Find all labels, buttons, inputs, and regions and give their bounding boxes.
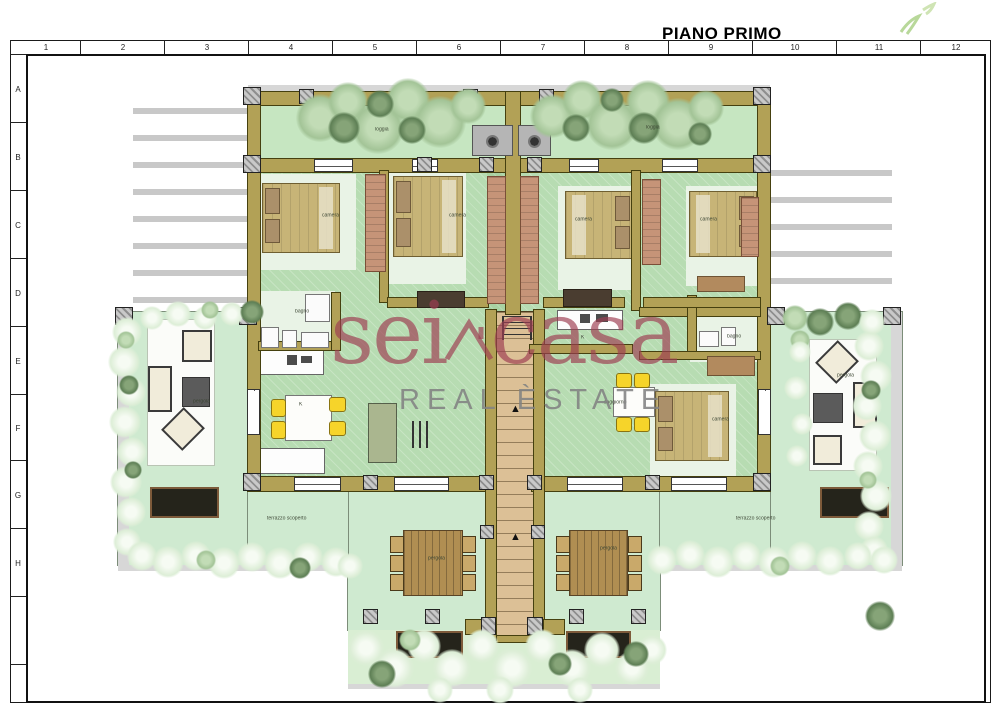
ruler-row-A: A [10,54,26,123]
brand-right: casa [491,300,678,369]
roof-slat [768,278,892,284]
pier [480,476,493,489]
pier [646,476,659,489]
window [672,478,726,490]
tree [861,380,881,400]
pier [418,158,431,171]
chair [617,418,631,431]
ruler-row-E: E [10,326,26,395]
wood-chair [463,537,475,552]
bush [337,553,363,579]
window [315,160,352,171]
bush [859,309,885,335]
ruler-column-1: 1 [10,40,81,54]
bath-fixture [283,331,296,347]
tree [600,88,624,112]
ruler-column-5: 5 [332,40,417,54]
bed-pillow [616,197,629,220]
roof-slat [133,270,247,276]
bed-sheet [696,195,710,253]
ruler-column-7: 7 [500,40,585,54]
tree [398,116,426,144]
wood-chair [463,556,475,571]
tree [240,300,264,324]
bush [109,406,141,438]
bed-pillow [266,220,279,242]
bush [140,306,164,330]
ruler-column-9: 9 [668,40,753,54]
tree [688,90,724,126]
tree [623,641,649,667]
tree [196,550,216,570]
bush [152,546,184,578]
ruler-column-10: 10 [752,40,837,54]
tree [865,601,895,631]
roof-slat [768,197,892,203]
bush [116,497,146,527]
bush [165,301,191,327]
ruler-row-G: G [10,460,26,529]
tree [368,660,396,688]
wood-chair [629,556,641,571]
roof-slat [768,170,892,176]
bath-fixture [302,333,328,347]
pier [244,88,260,104]
pier [481,526,493,538]
tree [548,652,572,676]
sink [301,356,312,363]
roof-slat [133,108,247,114]
wood-chair [391,556,403,571]
bed-pillow [659,428,672,450]
tree [834,302,862,330]
bed-sheet [708,395,722,457]
bush [786,445,808,467]
pier [364,476,377,489]
pier [244,156,260,172]
wood-chair [463,575,475,590]
tree [450,88,486,124]
dining-table [286,396,331,440]
bed-sheet [572,195,586,255]
pier [528,158,541,171]
pier [532,526,544,538]
tree [399,629,421,651]
bed-pillow [397,219,410,247]
bath-fixture [262,328,278,347]
outdoor-armchair [150,368,170,410]
radiator [412,421,429,448]
bed-pillow [266,189,279,213]
wood-chair [629,537,641,552]
ruler-row-C: C [10,190,26,259]
roof-slat [133,135,247,141]
wardrobe [742,198,758,256]
bush [870,546,898,574]
wood-chair [391,537,403,552]
tree [201,301,219,319]
chair [272,422,285,438]
roof-slat [133,189,247,195]
window [248,390,259,434]
chair [330,422,345,435]
window [663,160,697,171]
wood-chair [629,575,641,590]
brand-left: sei [330,300,447,369]
ruler-row-H: H [10,528,26,597]
ac-fan-icon [530,137,539,146]
tree [119,375,139,395]
watermark-subtitle: REAL ÈSTATE [399,384,667,417]
ruler-column-11: 11 [836,40,921,54]
sideboard [261,449,324,473]
path-strip [891,312,902,565]
tree [366,90,394,118]
pier [364,610,377,623]
outdoor-table [814,394,842,422]
pier [754,156,770,172]
wood-chair [557,575,569,590]
window [295,478,340,490]
tree [328,112,360,144]
tree [770,556,790,576]
roof-slat [768,251,892,257]
ruler-column-12: 12 [920,40,991,54]
pier [632,610,645,623]
pier [480,158,493,171]
window [570,160,598,171]
pier [754,88,770,104]
house-roof-icon [443,309,495,363]
tree [688,122,712,146]
tree [806,308,834,336]
tree [124,461,142,479]
outdoor-armchair [815,437,840,463]
bush [237,542,267,572]
bush [844,542,872,570]
bush [787,541,817,571]
tree [859,471,877,489]
wood-chair [557,537,569,552]
roof-slat [768,224,892,230]
bush [854,331,884,361]
outdoor-armchair [184,332,210,360]
pier [528,476,541,489]
bed-pillow [397,182,410,212]
bush [427,677,453,703]
bush [567,677,593,703]
wardrobe [366,175,385,271]
roof-slat [133,162,247,168]
tree [782,305,808,331]
chair [635,418,649,431]
dresser [708,357,754,375]
bush [647,545,677,575]
ruler-column-8: 8 [584,40,669,54]
floorplan-sheet: PIANO PRIMO 123456789101112 ABCDEFGH ▲▲l… [0,0,1000,707]
ruler-row-F: F [10,394,26,461]
ruler-row-x [10,596,26,665]
pier [244,474,260,490]
tree [562,114,590,142]
bush [486,676,514,704]
bush [859,420,891,452]
window [568,478,622,490]
bush [815,546,845,576]
plant-sketch-icon [893,2,937,40]
ruler-column-4: 4 [248,40,333,54]
ruler-column-2: 2 [80,40,165,54]
sofa [369,404,396,462]
chair [330,398,345,411]
stair-up-arrow: ▲ [510,532,522,544]
sun-lounger [150,487,219,518]
chair [272,400,285,416]
roof-slat [133,216,247,222]
stove [287,355,297,365]
pier [426,610,439,623]
wood-table [404,531,462,595]
pier [884,308,900,324]
bath-fixture [700,332,718,346]
watermark: sei casa [330,300,677,369]
bush [108,346,140,378]
ruler-row-D: D [10,258,26,327]
ruler-column-6: 6 [416,40,501,54]
wood-chair [391,575,403,590]
wardrobe [643,180,660,264]
bush [784,376,808,400]
window [759,390,770,434]
pier [754,474,770,490]
dresser [698,277,744,291]
ruler-column-3: 3 [164,40,249,54]
bush [731,541,761,571]
bath-fixture [306,295,329,321]
ruler-row-x [10,664,26,700]
tree [117,331,135,349]
wood-table [570,531,627,595]
window [395,478,448,490]
tree [289,557,311,579]
roof-slat [133,243,247,249]
wood-chair [557,556,569,571]
bush [675,540,705,570]
bush [702,546,734,578]
bush [789,341,811,363]
ac-fan-icon [488,137,497,146]
bed-pillow [616,227,629,248]
pier [570,610,583,623]
bush [791,413,813,435]
ruler-row-B: B [10,122,26,191]
